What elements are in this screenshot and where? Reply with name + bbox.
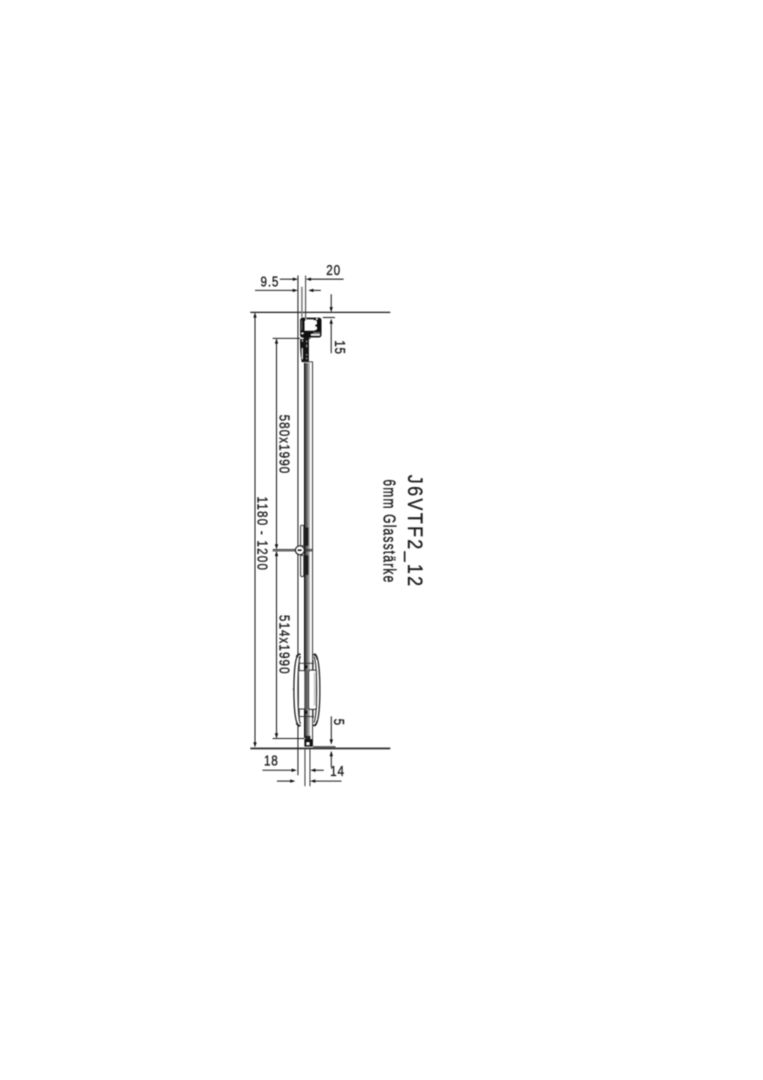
svg-text:20: 20	[326, 261, 341, 278]
svg-text:9.5: 9.5	[260, 273, 279, 290]
svg-text:5: 5	[331, 719, 348, 726]
svg-text:J6VTF2_12: J6VTF2_12	[403, 475, 427, 589]
svg-text:514x1990: 514x1990	[276, 615, 293, 675]
svg-text:15: 15	[332, 340, 349, 355]
svg-text:1180 - 1200: 1180 - 1200	[254, 497, 271, 572]
svg-text:18: 18	[264, 752, 279, 769]
svg-text:14: 14	[330, 763, 345, 780]
svg-text:580x1990: 580x1990	[276, 415, 293, 475]
svg-text:6mm Glasstärke: 6mm Glasstärke	[379, 479, 399, 583]
